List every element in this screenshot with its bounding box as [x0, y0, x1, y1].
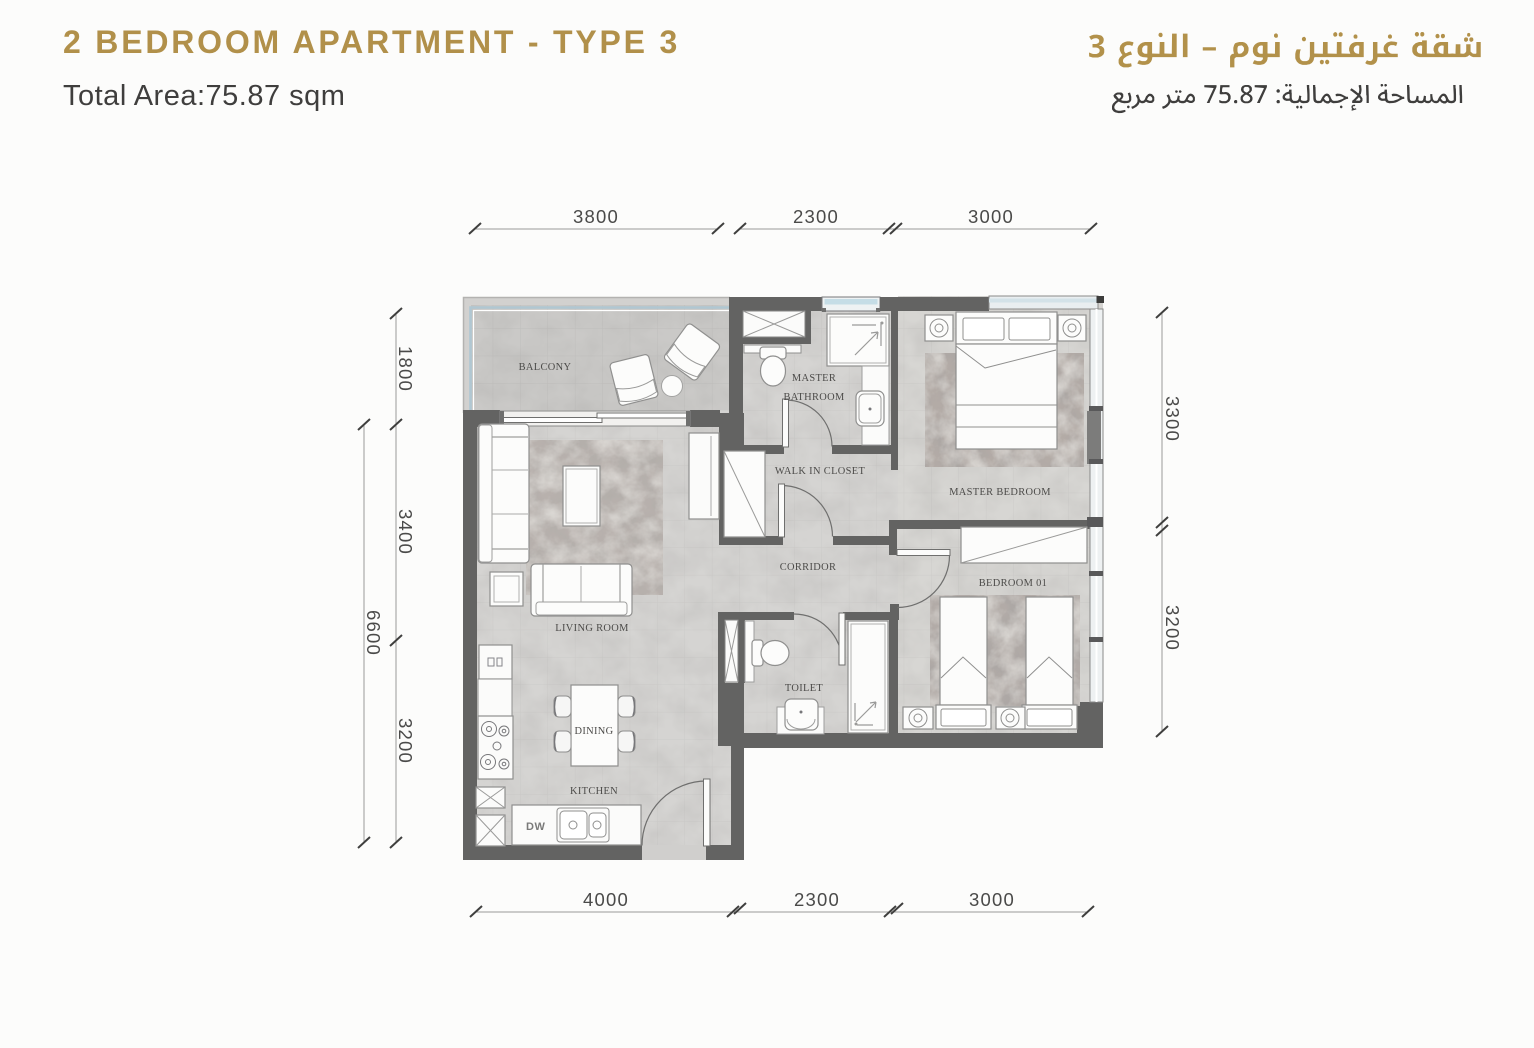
svg-text:MASTER BEDROOM: MASTER BEDROOM [949, 487, 1051, 498]
svg-text:DINING: DINING [574, 726, 613, 737]
svg-text:WALK IN CLOSET: WALK IN CLOSET [775, 466, 866, 477]
svg-text:Total Area:75.87 sqm: Total Area:75.87 sqm [63, 80, 345, 112]
svg-text:MASTER: MASTER [792, 373, 836, 384]
svg-text:1800: 1800 [395, 346, 416, 392]
svg-text:TOILET: TOILET [785, 683, 824, 694]
svg-text:BALCONY: BALCONY [519, 362, 572, 373]
svg-text:2300: 2300 [793, 206, 839, 227]
svg-text:LIVING ROOM: LIVING ROOM [555, 623, 628, 634]
svg-text:3300: 3300 [1162, 396, 1183, 442]
svg-text:KITCHEN: KITCHEN [570, 786, 618, 797]
svg-text:3000: 3000 [969, 889, 1015, 910]
svg-text:2 BEDROOM APARTMENT - TYPE 3: 2 BEDROOM APARTMENT - TYPE 3 [63, 24, 680, 60]
svg-text:BEDROOM 01: BEDROOM 01 [979, 578, 1047, 589]
svg-text:CORRIDOR: CORRIDOR [780, 562, 837, 573]
svg-text:3400: 3400 [395, 509, 416, 555]
svg-text:3800: 3800 [573, 206, 619, 227]
svg-text:3200: 3200 [1162, 605, 1183, 651]
svg-text:4000: 4000 [583, 889, 629, 910]
svg-text:2300: 2300 [794, 889, 840, 910]
svg-text:BATHROOM: BATHROOM [783, 392, 844, 403]
svg-text:6600: 6600 [363, 610, 384, 656]
svg-text:3000: 3000 [968, 206, 1014, 227]
svg-text:DW: DW [526, 821, 545, 833]
svg-text:3200: 3200 [395, 718, 416, 764]
